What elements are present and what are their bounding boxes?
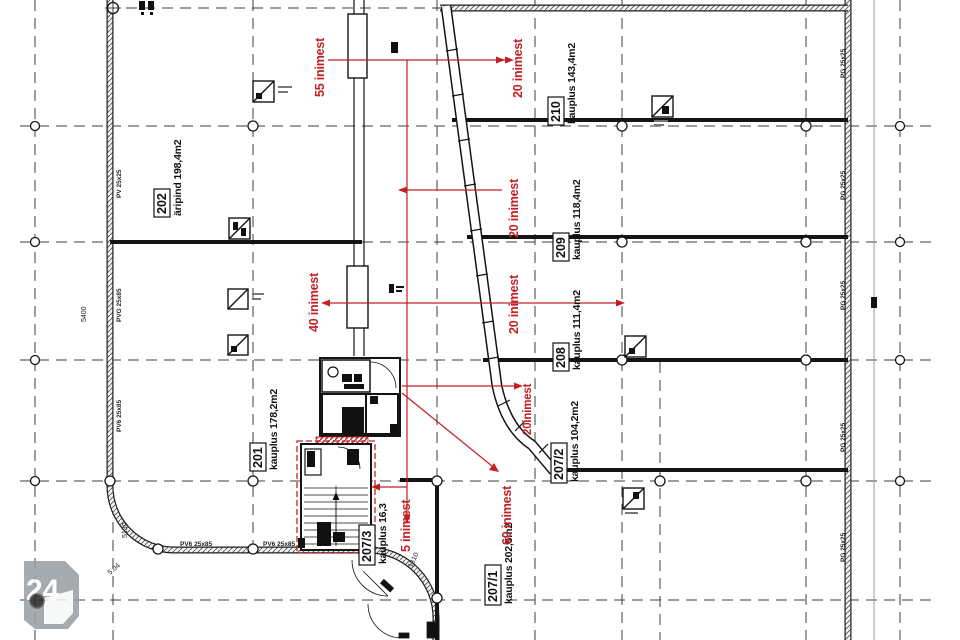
room-label-209: 209 kauplus 118,4m2: [553, 179, 583, 261]
svg-text:PVG 25x85: PVG 25x85: [116, 288, 123, 322]
svg-text:20 inimest: 20 inimest: [511, 38, 525, 98]
occupancy-note-20a: 20 inimest: [511, 38, 525, 98]
interior-walls: [110, 0, 848, 640]
svg-text:kauplus 178,2m2: kauplus 178,2m2: [268, 389, 280, 470]
svg-text:40 inimest: 40 inimest: [307, 272, 321, 332]
svg-text:209: 209: [554, 237, 568, 258]
svg-text:kauplus 111,4m2: kauplus 111,4m2: [571, 290, 583, 370]
svg-text:20 inimest: 20 inimest: [507, 178, 521, 238]
room-label-202: 202 äripind 198,4m2: [154, 139, 184, 217]
room-label-201: 201 kauplus 178,2m2: [250, 389, 280, 471]
toilet-room: [322, 360, 370, 392]
svg-text:PV 25x25: PV 25x25: [116, 169, 123, 198]
column-markers: [31, 0, 905, 603]
room-label-210: 210 kauplus 143,4m2: [548, 43, 578, 125]
svg-text:5400: 5400: [81, 306, 88, 322]
svg-text:kauplus 16,3: kauplus 16,3: [377, 503, 389, 564]
svg-text:207/3: 207/3: [360, 531, 374, 562]
hatch-symbol: [229, 218, 250, 239]
annotation-mark: [871, 297, 877, 308]
occupancy-note-60: 60 inimest: [500, 485, 514, 545]
svg-text:5.04: 5.04: [107, 562, 122, 576]
floor-plan-canvas: 202 äripind 198,4m2 201 kauplus 178,2m2 …: [0, 0, 960, 640]
svg-text:202: 202: [155, 193, 169, 214]
watermark-badge-24: 24: [24, 561, 79, 629]
svg-text:PV6 25x85: PV6 25x85: [116, 399, 123, 432]
svg-text:PG 25x25: PG 25x25: [840, 170, 847, 200]
svg-text:kauplus 118,4m2: kauplus 118,4m2: [571, 179, 583, 260]
hatch-symbol: [623, 488, 644, 513]
floor-plan-page: 202 äripind 198,4m2 201 kauplus 178,2m2 …: [0, 0, 960, 640]
svg-text:äripind 198,4m2: äripind 198,4m2: [172, 139, 184, 216]
svg-text:1310: 1310: [407, 552, 420, 569]
svg-text:PG 25x25: PG 25x25: [840, 532, 847, 562]
occupancy-note-20b: 20 inimest: [507, 178, 521, 238]
hatch-symbol: [228, 335, 248, 355]
elevator-core: [316, 358, 400, 444]
svg-text:PV6 25x85: PV6 25x85: [180, 541, 213, 548]
watermark-dot-icon: [30, 594, 44, 608]
exterior-walls: [110, 0, 848, 640]
svg-text:5 inimest: 5 inimest: [399, 499, 413, 552]
svg-text:5130: 5130: [122, 522, 129, 538]
svg-text:PG 25x25: PG 25x25: [840, 280, 847, 310]
occupancy-note-55: 55 inimest: [313, 37, 327, 97]
svg-text:20inimest: 20inimest: [522, 383, 534, 435]
svg-text:PV6 25x85: PV6 25x85: [263, 541, 296, 548]
svg-text:60 inimest: 60 inimest: [500, 485, 514, 545]
occupancy-note-20c: 20 inimest: [507, 274, 521, 334]
hatch-symbol: [253, 81, 292, 102]
occupancy-note-5: 5 inimest: [399, 499, 413, 552]
svg-text:20 inimest: 20 inimest: [507, 274, 521, 334]
svg-text:201: 201: [251, 447, 265, 468]
svg-text:PG 25x25: PG 25x25: [840, 48, 847, 78]
svg-text:55 inimest: 55 inimest: [313, 37, 327, 97]
hatch-symbol: [625, 336, 646, 357]
room-label-207-2: 207/2 kauplus 104,2m2: [551, 401, 581, 483]
room-label-208: 208 kauplus 111,4m2: [553, 290, 583, 371]
svg-text:kauplus 143,4m2: kauplus 143,4m2: [566, 43, 578, 124]
occupancy-note-40: 40 inimest: [307, 272, 321, 332]
svg-text:207/1: 207/1: [486, 571, 500, 602]
svg-text:207/2: 207/2: [552, 449, 566, 480]
elevator-car: [342, 407, 364, 434]
svg-text:kauplus 104,2m2: kauplus 104,2m2: [569, 401, 581, 482]
occupancy-note-20d: 20inimest: [522, 383, 534, 435]
svg-text:PG 25x25: PG 25x25: [840, 422, 847, 452]
hatch-symbols: [228, 81, 673, 513]
svg-text:208: 208: [554, 347, 568, 368]
svg-text:210: 210: [549, 101, 563, 122]
hatch-symbol: [228, 289, 264, 309]
